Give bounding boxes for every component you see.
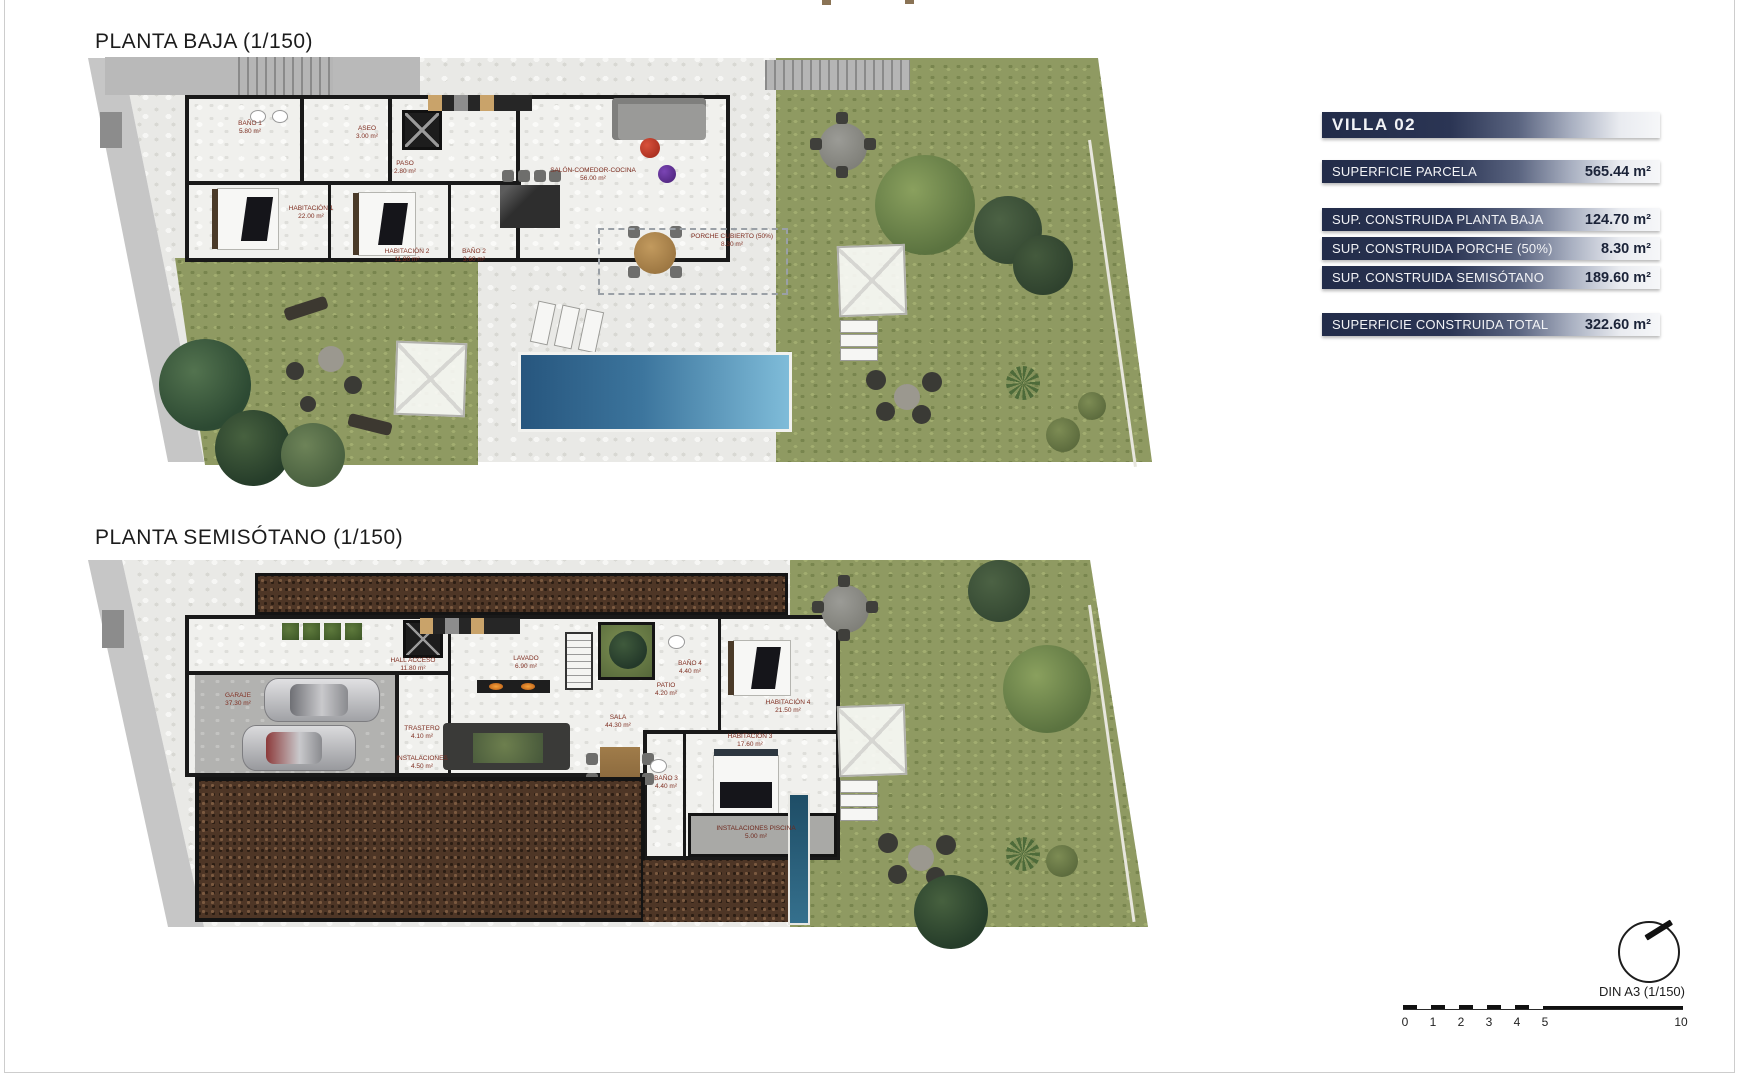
scale-tick: 10 [1674,1015,1687,1029]
garden-pouf [286,362,304,380]
chair [838,575,850,587]
sun-lounger [840,334,878,347]
rug [473,733,543,763]
pine-tree [914,875,988,949]
scale-tick: 5 [1542,1015,1549,1029]
pool-edge [788,793,810,925]
plan-sheet: PLANTA BAJA (1/150) PLANTA SEMISÓTANO (1… [0,0,1737,1080]
plan-semisotano-drawing: HALL ACCESO11.80 m² GARAJE37.30 m² TRAST… [88,515,1158,935]
room-label-bano4: BAÑO 44.40 m² [678,660,702,676]
sun-lounger [840,808,878,821]
wall [683,733,686,858]
bed [713,755,779,815]
bed [217,188,279,250]
hedge [968,560,1030,622]
room-label-lavado: LAVADO6.90 m² [513,655,538,671]
chair [864,138,876,150]
room-label-garaje: GARAJE37.30 m² [225,692,251,708]
planter [345,623,362,640]
scale-tick: 4 [1514,1015,1521,1029]
sink [650,759,667,773]
round-table [819,123,867,171]
patio-tree [609,631,647,669]
large-tree [1003,645,1091,733]
info-row-total: SUPERFICIE CONSTRUIDA TOTAL 322.60 m² [1322,313,1660,336]
room-label-bano2: BAÑO 23.60 m² [462,248,486,264]
villa-title-bar: VILLA 02 [1322,112,1660,138]
planter [324,623,341,640]
chair [586,753,598,765]
entry-stairs [238,57,333,95]
planter [282,623,299,640]
olive-tree [1046,418,1080,452]
stool [534,170,546,182]
laundry-counter [420,618,520,634]
purple-pouf [658,165,676,183]
villa-title: VILLA 02 [1322,115,1660,135]
format-label: DIN A3 (1/150) [1543,984,1685,999]
info-label: SUP. CONSTRUIDA PORCHE (50%) [1322,241,1601,256]
info-value: 124.70 m² [1585,212,1660,228]
bed [358,192,416,256]
room-label-habitacion1: HABITACIÓN 122.00 m² [289,205,334,221]
chair [838,629,850,641]
staircase [565,632,593,690]
sun-lounger [840,348,878,361]
garden-pouf [878,833,898,853]
stool [502,170,514,182]
info-label: SUP. CONSTRUIDA PLANTA BAJA [1322,212,1585,227]
room-label-aseo: ASEO3.00 m² [356,125,378,141]
palm-tree [1006,366,1040,400]
wall [448,185,451,262]
info-row-parcela: SUPERFICIE PARCELA 565.44 m² [1322,160,1660,183]
stone-table [318,346,344,372]
info-value: 189.60 m² [1585,270,1660,286]
kitchen-counter [428,95,532,111]
info-value: 8.30 m² [1601,241,1660,257]
room-label-habitacion2: HABITACIÓN 211.80 m² [385,248,430,264]
room-label-bano1: BAÑO 15.80 m² [238,120,262,136]
info-label: SUP. CONSTRUIDA SEMISÓTANO [1322,270,1585,285]
logo-fragment [822,0,831,5]
gravel-yard [195,777,645,922]
swimming-pool [518,352,792,432]
room-label-habitacion3: HABITACIÓN 317.60 m² [728,733,773,749]
utility-box [102,610,124,648]
sink [272,110,288,123]
gravel-strip-top [255,573,788,615]
olive-tree [1078,392,1106,420]
chair [810,138,822,150]
info-row-semisotano: SUP. CONSTRUIDA SEMISÓTANO 189.60 m² [1322,266,1660,289]
chair [866,601,878,613]
wall [718,618,721,730]
bed [733,640,791,696]
garden-pouf [936,835,956,855]
info-label: SUPERFICIE CONSTRUIDA TOTAL [1322,317,1585,332]
info-value: 322.60 m² [1585,317,1660,333]
palm-tree [1006,837,1040,871]
garden-pouf [866,370,886,390]
info-value: 565.44 m² [1585,164,1660,180]
sink [668,635,685,649]
room-label-paso: PASO2.80 m² [394,160,416,176]
sofa [443,723,570,770]
chair [836,166,848,178]
room-label-habitacion4: HABITACIÓN 421.50 m² [766,699,811,715]
room-label-hall-acceso: HALL ACCESO11.80 m² [391,657,436,673]
stool [518,170,530,182]
room-label-patio: PATIO4.20 m² [655,682,677,698]
wall [328,185,331,262]
patio-garden [598,622,655,680]
chair [812,601,824,613]
garden-pouf [888,865,907,884]
gazebo [837,704,907,777]
garden-pouf [912,405,931,424]
info-label: SUPERFICIE PARCELA [1322,164,1585,179]
chair [836,112,848,124]
scale-bar: 0 1 2 3 4 5 10 [1403,1003,1683,1031]
garden-pouf [922,372,942,392]
room-label-bano3: BAÑO 34.40 m² [654,775,678,791]
olive-tree [1046,845,1078,877]
wall [300,95,304,185]
room-label-inst-piscina: INSTALACIONES PISCINA5.00 m² [716,825,795,841]
garden-pouf [876,402,895,421]
garden-stairs [765,60,910,90]
scale-tick: 1 [1430,1015,1437,1029]
wall [185,181,521,185]
north-arrow-icon [1618,921,1680,983]
planter [303,623,320,640]
room-label-sala: SALA44.30 m² [605,714,631,730]
sofa [612,98,706,140]
garden-pouf [344,376,362,394]
room-label-trastero: TRASTERO4.10 m² [404,725,439,741]
large-tree [875,155,975,255]
elevator-shaft [402,110,442,150]
car [264,678,380,722]
room-label-porche: PORCHE CUBIERTO (50%)8.30 m² [691,233,773,249]
pine-tree [215,410,291,486]
scale-tick: 0 [1402,1015,1409,1029]
info-row-planta-baja: SUP. CONSTRUIDA PLANTA BAJA 124.70 m² [1322,208,1660,231]
bush [281,423,345,487]
sun-lounger [840,780,878,793]
garden-pouf [300,396,316,412]
gazebo [837,244,907,317]
pergola [394,341,468,417]
round-table [821,585,869,633]
scale-tick: 3 [1486,1015,1493,1029]
fireplace [477,680,550,693]
wall [388,95,392,185]
scale-tick: 2 [1458,1015,1465,1029]
red-pouf [640,138,660,158]
sun-lounger [840,320,878,333]
kitchen-island [500,185,560,228]
gravel-yard [643,860,788,922]
room-label-instalaciones: INSTALACIONES4.50 m² [396,755,448,771]
sun-lounger [840,794,878,807]
room-label-salon: SALÓN-COMEDOR-COCINA56.00 m² [550,167,636,183]
info-row-porche: SUP. CONSTRUIDA PORCHE (50%) 8.30 m² [1322,237,1660,260]
hedge [1013,235,1073,295]
utility-box [100,112,122,148]
logo-fragment [905,0,914,4]
car [242,725,356,771]
plan-baja-drawing: BAÑO 15.80 m² ASEO3.00 m² PASO2.80 m² HA… [88,50,1158,468]
